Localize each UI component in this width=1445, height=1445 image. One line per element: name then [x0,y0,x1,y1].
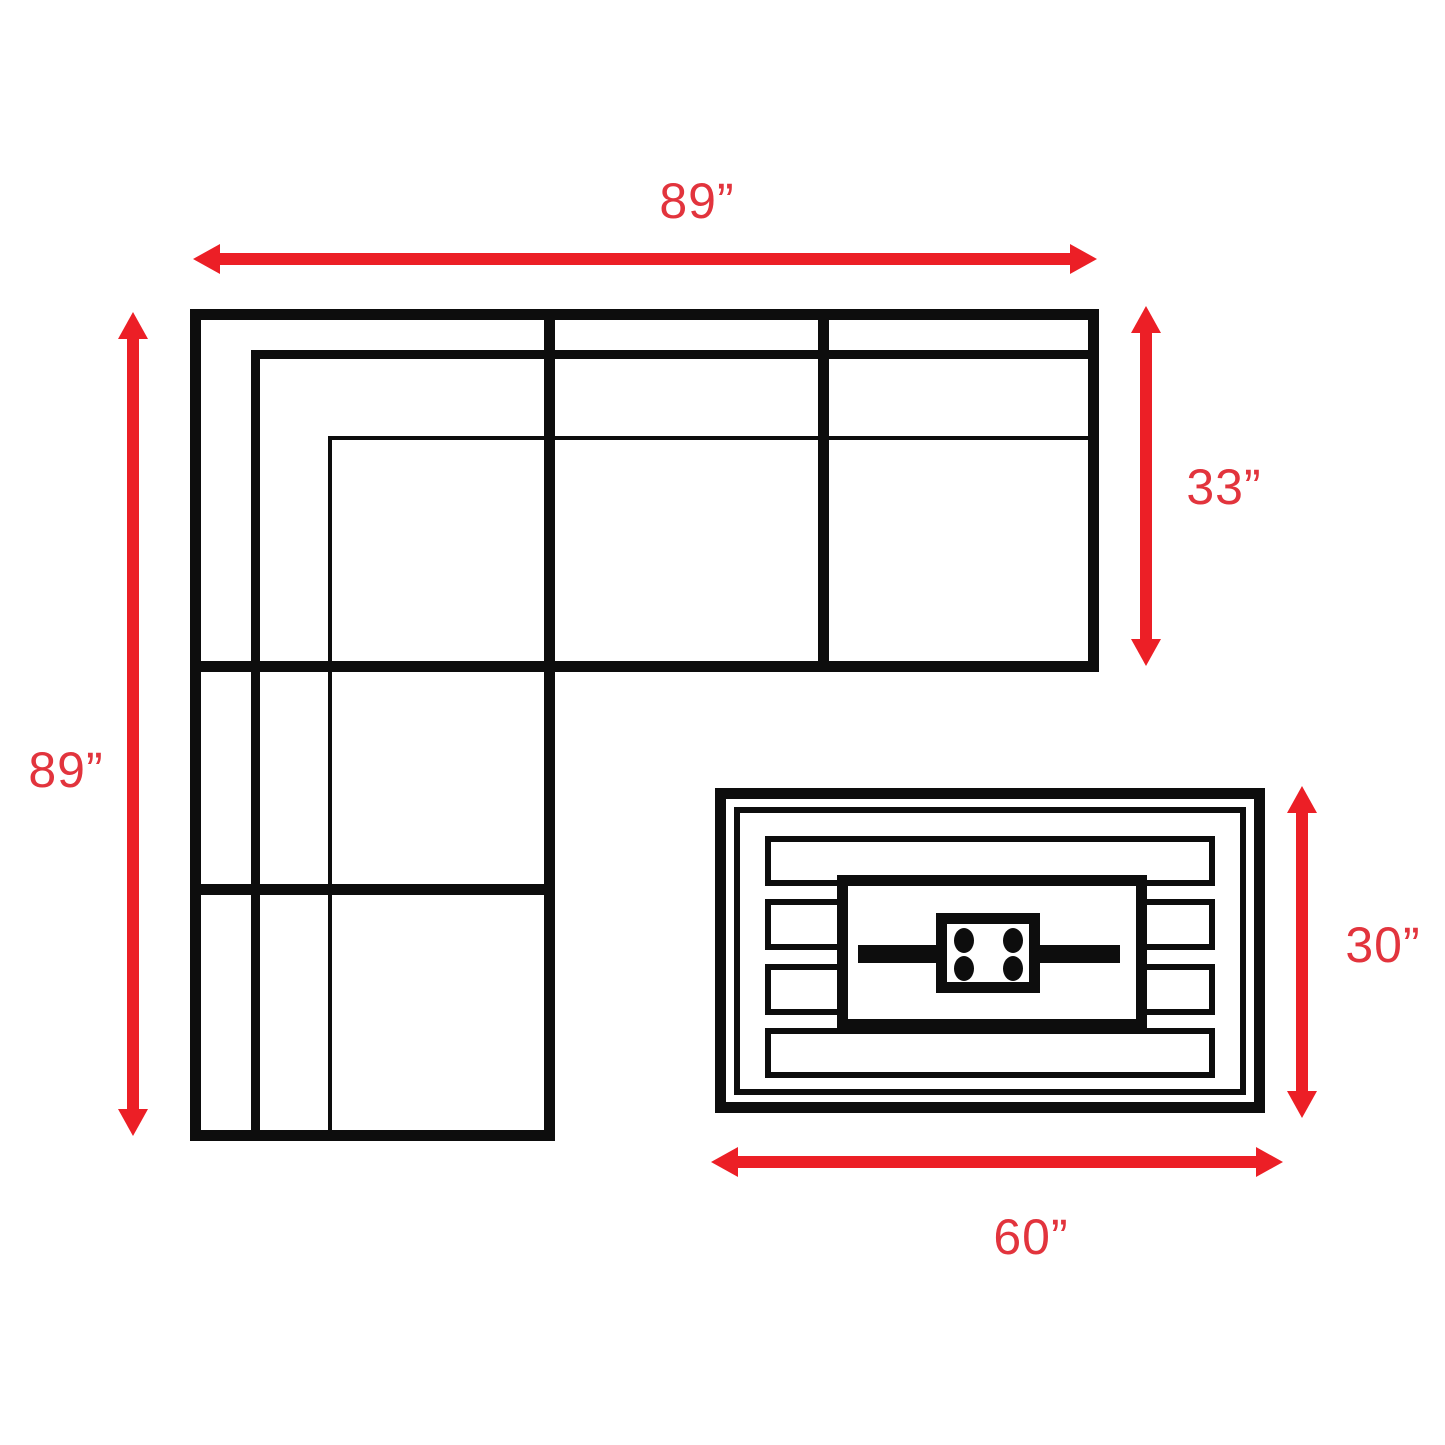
burner-jet-dot-2 [1003,928,1023,953]
arrowhead-right-icon [1070,244,1097,274]
arrow-shaft [127,332,139,1116]
sofa-depth-label: 89” [28,745,103,795]
arrow-shaft [731,1156,1263,1168]
sofa-seat-line-vertical [328,436,332,1141]
sofa-depth-arrow-icon [117,312,149,1136]
arrow-shaft [1140,326,1152,646]
arrow-shaft [213,253,1077,265]
sofa-divider-horizontal-lower [190,884,554,895]
table-width-arrow-icon [711,1146,1283,1178]
burner-jet-dot-1 [954,928,974,953]
burner-jet-dot-3 [954,956,974,981]
sofa-divider-horizontal-upper [190,661,1099,672]
sofa-backrest-line-horizontal [251,350,1099,359]
table-slat-4 [765,1028,1215,1078]
arrowhead-down-icon [1287,1091,1317,1118]
sofa-outline-bottom [190,1130,554,1141]
furniture-dimension-diagram: 89” 89” 33” 30” 60” [0,0,1445,1445]
section-depth-label: 33” [1186,462,1261,512]
table-depth-arrow-icon [1286,786,1318,1118]
table-depth-label: 30” [1345,920,1420,970]
sofa-divider-vertical-inner [544,309,555,1141]
table-width-label: 60” [993,1212,1068,1262]
sofa-backrest-line-vertical [251,350,260,1141]
sofa-width-arrow-icon [193,243,1097,275]
arrowhead-down-icon [1131,639,1161,666]
sofa-divider-vertical-right [818,309,829,672]
sofa-outline-left [190,309,201,1141]
sofa-outline-right [1088,309,1099,672]
section-depth-arrow-icon [1130,306,1162,666]
arrow-shaft [1296,806,1308,1098]
sofa-outline-top [190,309,1099,320]
burner-jet-dot-4 [1003,956,1023,981]
arrowhead-down-icon [118,1109,148,1136]
arrowhead-right-icon [1256,1147,1283,1177]
sofa-seat-line-horizontal [328,436,1099,440]
table-burner-box [936,913,1040,993]
sofa-width-label: 89” [659,176,734,226]
